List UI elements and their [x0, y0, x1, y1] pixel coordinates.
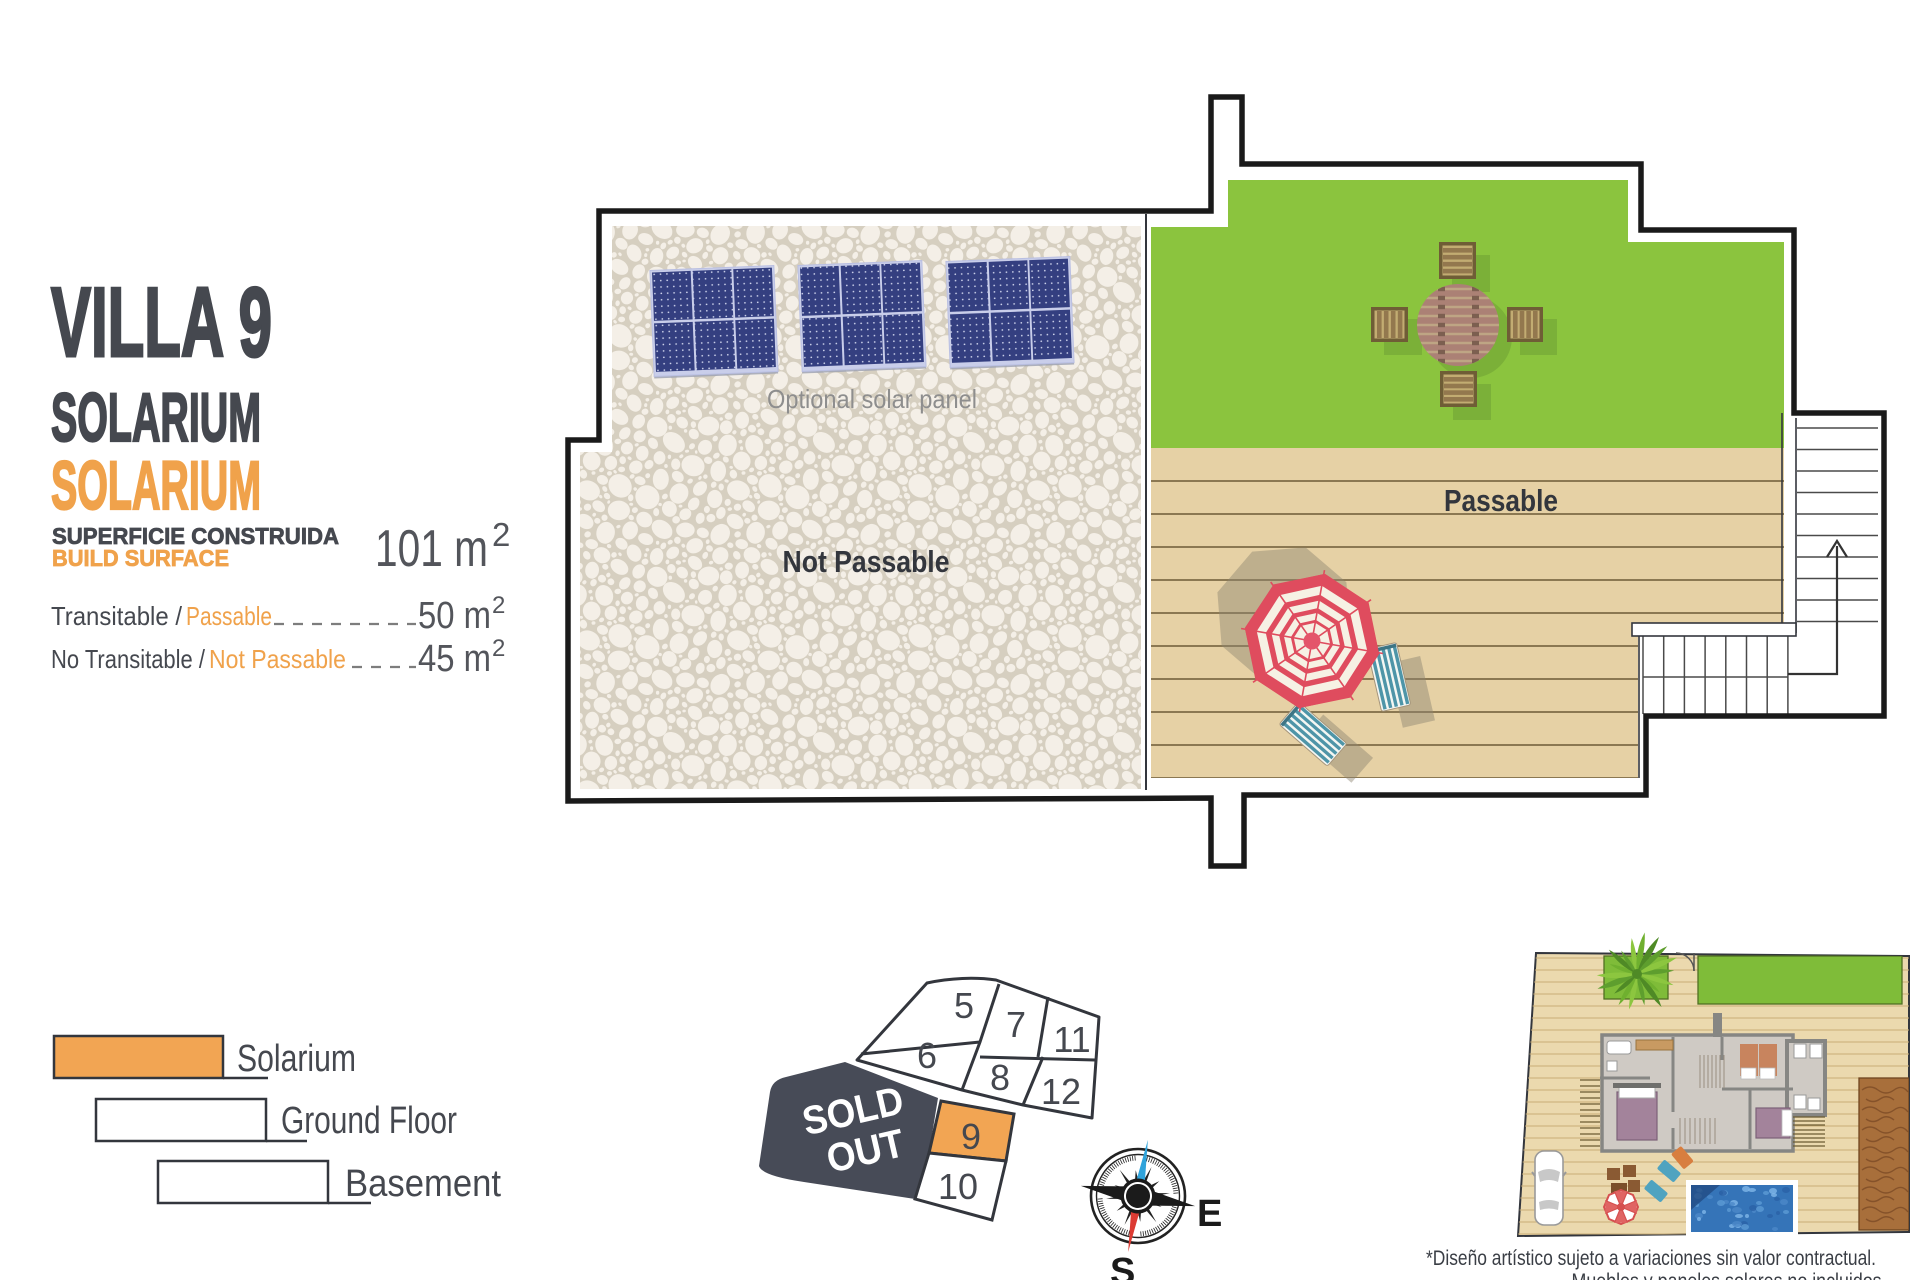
svg-text:Not Passable: Not Passable [783, 544, 950, 579]
svg-text:Basement: Basement [345, 1163, 501, 1205]
svg-text:SOLARIUM: SOLARIUM [51, 447, 261, 524]
svg-text:Solarium: Solarium [237, 1038, 356, 1080]
svg-text:11: 11 [1053, 1019, 1090, 1060]
svg-text:12: 12 [1041, 1071, 1081, 1112]
svg-text:6: 6 [917, 1035, 937, 1076]
svg-text:7: 7 [1006, 1004, 1026, 1045]
svg-text:Passable: Passable [1444, 483, 1558, 518]
svg-text:2: 2 [492, 516, 510, 553]
svg-text:Optional solar panel: Optional solar panel [767, 384, 977, 414]
svg-text:Not Passable: Not Passable [209, 644, 346, 674]
svg-text:2: 2 [492, 592, 505, 619]
svg-text:BUILD SURFACE: BUILD SURFACE [52, 545, 229, 571]
svg-text:No Transitable /: No Transitable / [51, 644, 206, 674]
svg-text:Ground Floor: Ground Floor [281, 1100, 457, 1142]
svg-text:9: 9 [961, 1116, 981, 1157]
svg-text:5: 5 [954, 985, 974, 1026]
svg-text:Muebles y paneles solares no i: Muebles y paneles solares no incluidos. [1572, 1270, 1887, 1280]
svg-text:S: S [1110, 1251, 1135, 1280]
svg-text:101 m: 101 m [375, 520, 488, 578]
svg-text:8: 8 [990, 1057, 1010, 1098]
svg-text:45 m: 45 m [418, 638, 491, 680]
svg-text:VILLA 9: VILLA 9 [51, 267, 272, 377]
svg-text:Transitable /: Transitable / [51, 601, 183, 631]
svg-text:50 m: 50 m [418, 595, 491, 637]
svg-text:E: E [1197, 1193, 1222, 1235]
svg-text:2: 2 [492, 635, 505, 662]
svg-text:*Diseño artístico sujeto a var: *Diseño artístico sujeto a variaciones s… [1426, 1247, 1876, 1270]
svg-text:SOLARIUM: SOLARIUM [51, 379, 261, 456]
svg-text:Passable: Passable [186, 601, 272, 631]
svg-text:10: 10 [938, 1166, 978, 1207]
